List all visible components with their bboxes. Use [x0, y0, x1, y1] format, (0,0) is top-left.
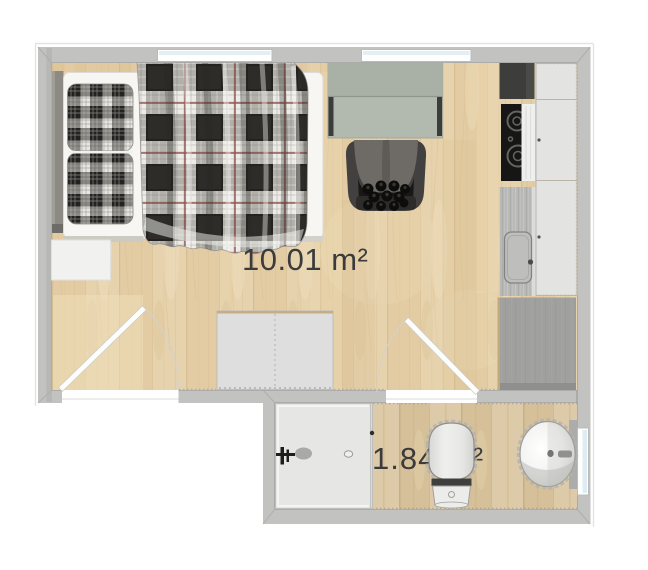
svg-text:10.01 m²: 10.01 m² — [242, 242, 368, 277]
